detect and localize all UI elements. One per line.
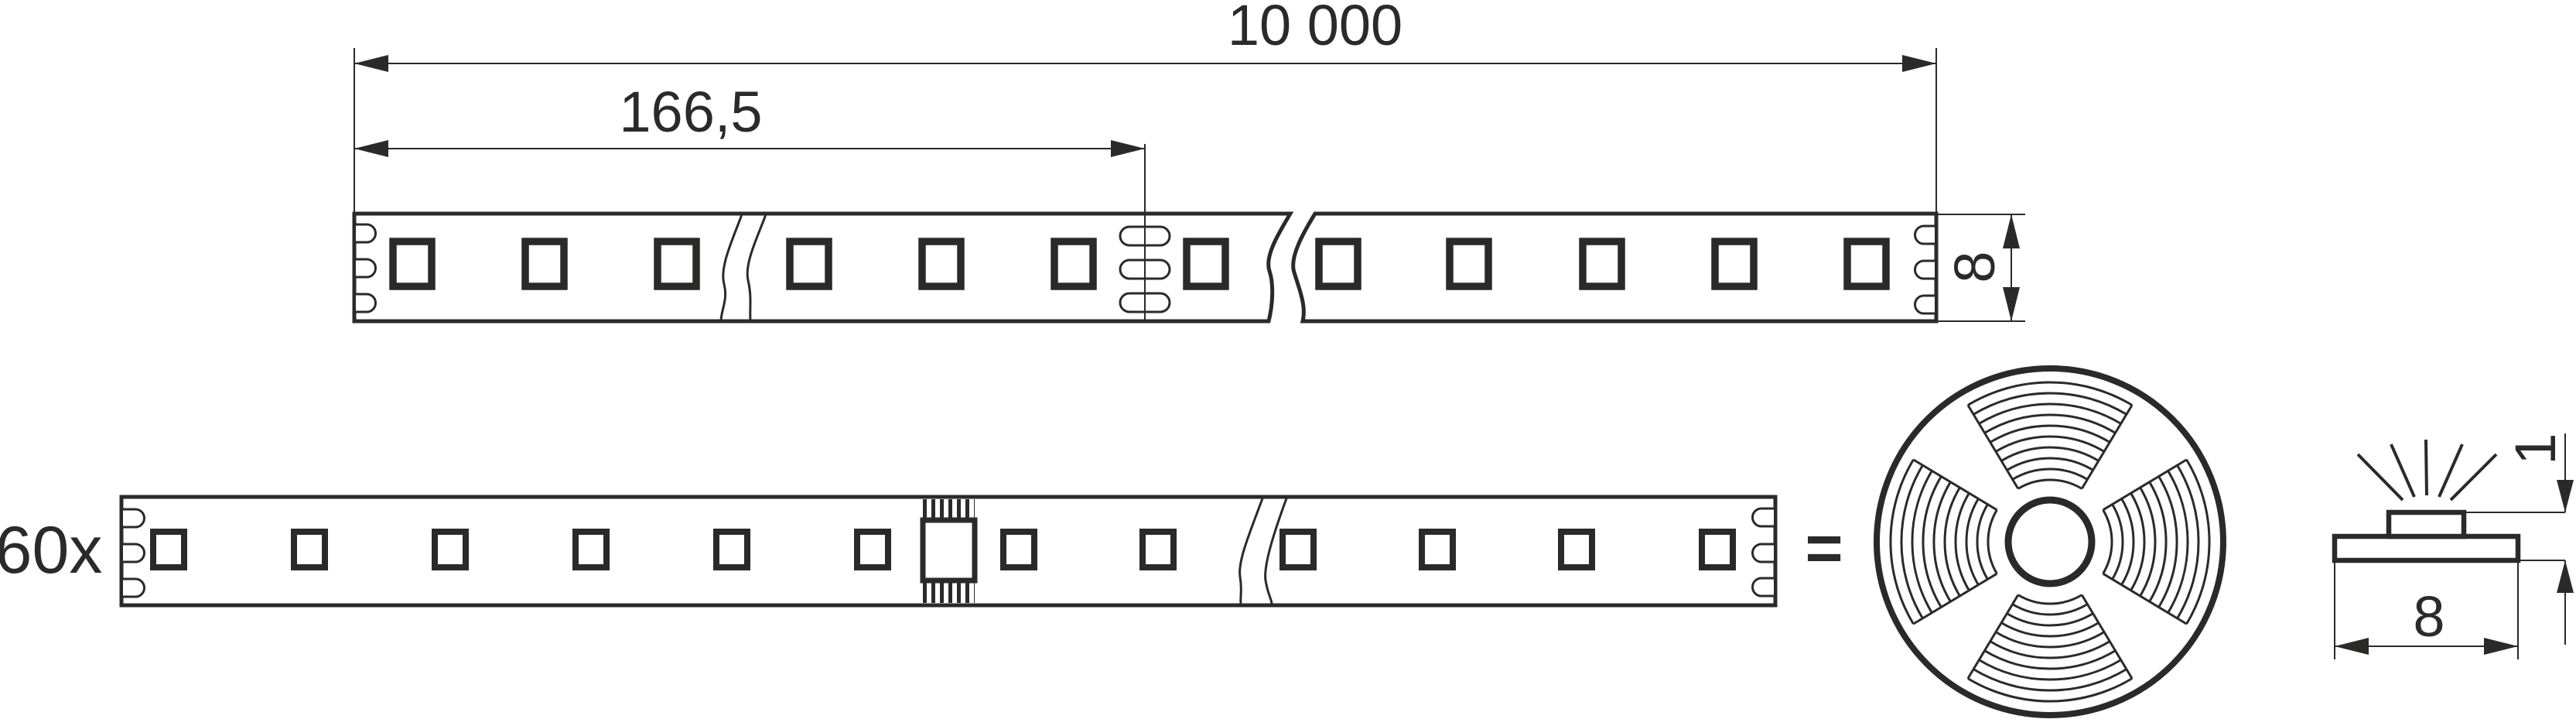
led-chip (1715, 241, 1754, 286)
led-strip-bottom (121, 497, 1775, 605)
dimension-arrow (2484, 638, 2518, 655)
solder-pad (1915, 261, 1935, 279)
ic-body (923, 520, 975, 580)
segment-length-value: 166,5 (619, 80, 762, 144)
solder-pad (1753, 544, 1775, 562)
led-chip (790, 241, 828, 286)
dimension-arrow (1111, 140, 1145, 157)
height-value: 1 (2503, 433, 2567, 464)
light-ray (2451, 454, 2496, 500)
equals-sign: = (1805, 512, 1843, 584)
reel-hub (2008, 500, 2092, 584)
led-chip (1422, 532, 1453, 567)
led-chip (1143, 532, 1174, 567)
led-chip (716, 532, 747, 567)
technical-drawing: 10 000 166,5 8 60x (0, 0, 2576, 726)
led-chip (658, 241, 696, 286)
led-chip (857, 532, 888, 567)
led-chip (576, 532, 606, 567)
solder-pad (1915, 296, 1935, 313)
led-chip (1003, 532, 1034, 567)
solder-pad (123, 579, 145, 597)
dimension-arrow (354, 140, 388, 157)
led-chip (525, 241, 564, 286)
light-ray (2358, 454, 2403, 500)
strip-width-value: 8 (1942, 251, 2007, 283)
dimension-arrow (1902, 55, 1936, 72)
solder-pad (123, 509, 145, 527)
led-chip (1583, 241, 1621, 286)
led-chip (1450, 241, 1488, 286)
solder-pad (356, 224, 376, 242)
dimension-arrow (354, 55, 388, 72)
led-chip (1187, 241, 1225, 286)
led-chip (1847, 241, 1886, 286)
led-chip (1702, 532, 1733, 567)
solder-pad (1753, 509, 1775, 526)
dimension-arrow (2003, 214, 2020, 248)
led-chip (393, 241, 432, 286)
solder-pad (123, 544, 145, 562)
dimension-arrow (2557, 480, 2574, 512)
total-length-value: 10 000 (1228, 0, 1402, 57)
strip-base-profile (2335, 536, 2518, 560)
led-cross-section (2335, 440, 2518, 560)
led-chip (1319, 241, 1358, 286)
dimension-arrow (2003, 287, 2020, 321)
base-width-value: 8 (2413, 584, 2444, 649)
light-ray (2391, 444, 2414, 497)
led-chip (1054, 241, 1093, 286)
solder-pad (356, 259, 376, 277)
led-chip (1561, 532, 1592, 567)
led-chip (1283, 532, 1314, 567)
led-reel (1877, 368, 2223, 715)
light-ray (2426, 440, 2427, 495)
solder-pad (1753, 578, 1775, 596)
light-ray (2439, 444, 2462, 497)
dimension-arrow (2335, 638, 2369, 655)
solder-pad (356, 294, 376, 312)
solder-pad (1915, 226, 1935, 244)
quantity-label: 60x (0, 513, 102, 587)
dimension-strip-width: 8 (1938, 214, 2025, 321)
led-chip (294, 532, 325, 567)
led-chip (153, 532, 184, 567)
led-chip (435, 532, 466, 567)
led-chip (922, 241, 961, 286)
ic-component (923, 499, 975, 603)
led-profile (2389, 512, 2464, 536)
